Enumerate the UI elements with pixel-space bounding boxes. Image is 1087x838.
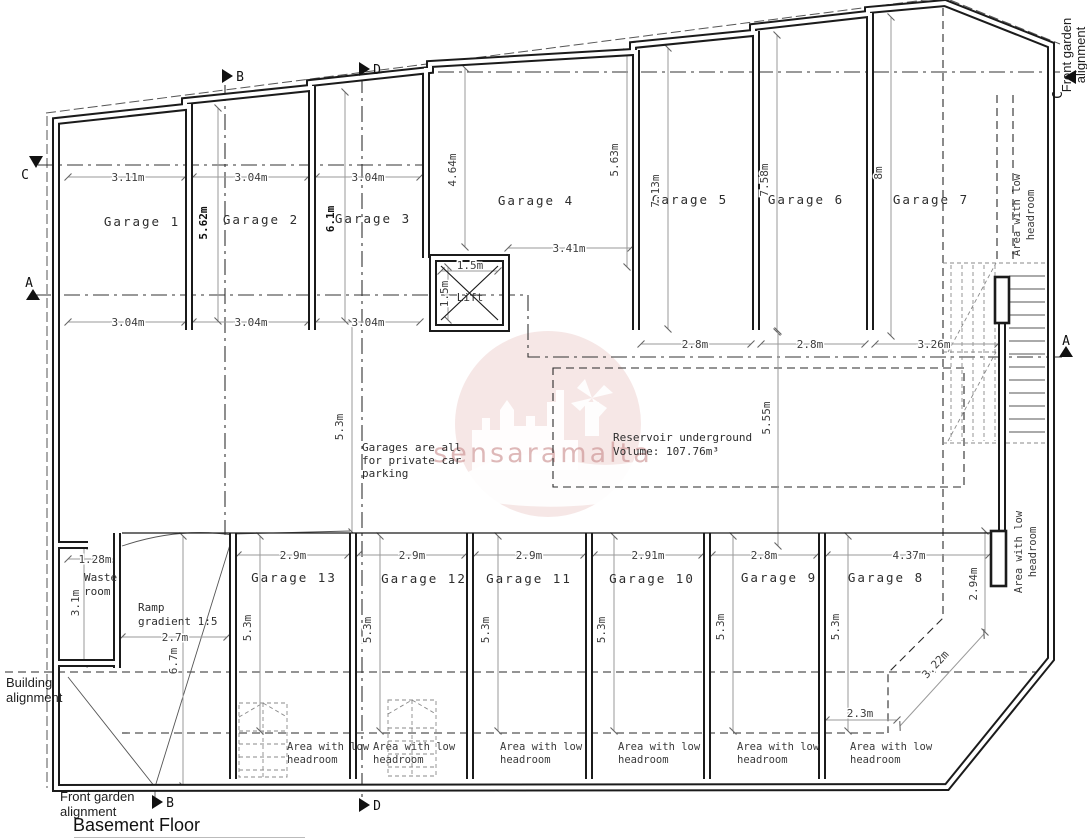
garage-12-label: Garage 12 xyxy=(381,571,467,586)
basement-floor-plan: sensaramalta xyxy=(0,0,1087,838)
dim-depth-g6: 7.58m xyxy=(758,163,771,196)
dim-depth-g7: 8m xyxy=(872,166,885,180)
front-garden-bottom-line1: Front garden xyxy=(60,789,134,804)
dim-depth-g4b: 5.63m xyxy=(608,143,621,176)
section-b-bottom-letter: B xyxy=(166,796,174,811)
dim-depth-g4a: 4.64m xyxy=(446,153,459,186)
dim-corner-diag: 3.22m xyxy=(919,648,951,681)
watermark-logo: sensaramalta xyxy=(433,331,662,517)
section-d-bottom-letter: D xyxy=(373,799,381,814)
low-headroom-g11-1: Area with low xyxy=(500,741,583,753)
dim-waste-h: 3.1m xyxy=(69,589,82,616)
section-b-top-marker xyxy=(222,69,233,83)
low-headroom-g12-2: headroom xyxy=(373,754,424,766)
garage-5-label: Garage 5 xyxy=(652,192,728,207)
dim-depth-g2: 5.62m xyxy=(197,206,210,239)
dim-bottom-6: 4.37m xyxy=(892,549,925,562)
dim-reservoir-h: 5.55m xyxy=(760,401,773,434)
section-a-left-letter: A xyxy=(25,276,33,291)
garage-6-label: Garage 6 xyxy=(768,192,844,207)
low-headroom-g9-1: Area with low xyxy=(737,741,820,753)
dim-right-2: 2.8m xyxy=(797,338,824,351)
section-c-left-marker xyxy=(29,156,43,168)
dim-mid-3: 3.04m xyxy=(351,316,384,329)
low-headroom-g11-2: headroom xyxy=(500,754,551,766)
garage-4-label: Garage 4 xyxy=(498,193,574,208)
garage-3-label: Garage 3 xyxy=(335,211,411,226)
dim-corner-h: 2.3m xyxy=(847,707,874,720)
dim-aisle: 5.3m xyxy=(333,413,346,440)
dim-garage4-opening: 3.41m xyxy=(552,242,585,255)
low-headroom-g8-2: headroom xyxy=(850,754,901,766)
dim-depth-g13: 5.3m xyxy=(241,614,254,641)
dim-mid-1: 3.04m xyxy=(111,316,144,329)
dim-depth-g12: 5.3m xyxy=(361,616,374,643)
dim-ramp-w: 2.7m xyxy=(162,631,189,644)
dim-bottom-1: 2.9m xyxy=(280,549,307,562)
dim-depth-g11: 5.3m xyxy=(479,616,492,643)
low-headroom-g10-1: Area with low xyxy=(618,741,701,753)
section-c-left-letter: C xyxy=(21,168,29,183)
low-headroom-g13-1: Area with low xyxy=(287,741,370,753)
section-b-top-letter: B xyxy=(236,70,244,85)
dim-lift-w: 1.5m xyxy=(457,259,484,272)
dim-lift-h: 1.5m xyxy=(438,280,451,307)
dim-depth-g5: 7.13m xyxy=(649,174,662,207)
ramp-label-line2: gradient 1:5 xyxy=(138,615,217,628)
garage-9-label: Garage 9 xyxy=(741,570,817,585)
building-alignment-line2: alignment xyxy=(6,690,63,705)
garage-8-label: Garage 8 xyxy=(848,570,924,585)
garage-10-label: Garage 10 xyxy=(609,571,695,586)
garage-7-label: Garage 7 xyxy=(893,192,969,207)
dim-top-2: 3.04m xyxy=(234,171,267,184)
low-headroom-g8-1: Area with low xyxy=(850,741,933,753)
low-headroom-topright-2: headroom xyxy=(1025,190,1037,241)
dim-corner-v: 2.94m xyxy=(967,567,980,600)
building-alignment-line1: Building xyxy=(6,675,52,690)
dim-waste-w: 1.28m xyxy=(78,553,111,566)
dim-bottom-4: 2.91m xyxy=(631,549,664,562)
dim-right-3: 3.26m xyxy=(917,338,950,351)
drawing-title-block: Basement Floor xyxy=(73,815,305,838)
dim-mid-2: 3.04m xyxy=(234,316,267,329)
section-d-top-letter: D xyxy=(373,63,381,78)
waste-room-line1: Waste xyxy=(84,571,117,584)
low-headroom-g12-1: Area with low xyxy=(373,741,456,753)
page-title: Basement Floor xyxy=(73,815,200,835)
dim-depth-g10: 5.3m xyxy=(595,616,608,643)
dim-depth-g3: 6.1m xyxy=(324,205,337,232)
dim-ramp-l: 6.7m xyxy=(167,647,180,674)
wall-pillar xyxy=(991,531,1006,586)
low-headroom-topright-1: Area with low xyxy=(1011,173,1023,256)
dim-bottom-5: 2.8m xyxy=(751,549,778,562)
dim-top-3: 3.04m xyxy=(351,171,384,184)
lift-label: Lift xyxy=(457,291,484,304)
dim-depth-g8: 5.3m xyxy=(829,613,842,640)
garage-11-label: Garage 11 xyxy=(486,571,572,586)
garage-13-label: Garage 13 xyxy=(251,570,337,585)
floor-plan-svg: sensaramalta xyxy=(0,0,1087,838)
dim-bottom-2: 2.9m xyxy=(399,549,426,562)
garage-2-label: Garage 2 xyxy=(223,212,299,227)
stair-newel-wall xyxy=(995,277,1009,323)
dim-top-1: 3.11m xyxy=(111,171,144,184)
dim-right-1: 2.8m xyxy=(682,338,709,351)
dim-bottom-3: 2.9m xyxy=(516,549,543,562)
low-headroom-g9-2: headroom xyxy=(737,754,788,766)
section-d-bottom-marker xyxy=(359,798,370,812)
reservoir-note-line2: Volume: 107.76m³ xyxy=(613,445,719,458)
garages-note-line2: for private car xyxy=(362,454,462,467)
dim-depth-g9: 5.3m xyxy=(714,613,727,640)
waste-room-line2: room xyxy=(84,585,111,598)
garages-note-line1: Garages are all xyxy=(362,441,461,454)
low-headroom-g13-2: headroom xyxy=(287,754,338,766)
low-headroom-right-1: Area with low xyxy=(1013,510,1025,593)
low-headroom-g10-2: headroom xyxy=(618,754,669,766)
garages-note-line3: parking xyxy=(362,467,408,480)
low-headroom-right-2: headroom xyxy=(1027,527,1039,578)
ramp-label-line1: Ramp xyxy=(138,601,165,614)
section-c-right-letter: C xyxy=(1051,91,1066,99)
garage-1-label: Garage 1 xyxy=(104,214,180,229)
reservoir-note-line1: Reservoir underground xyxy=(613,431,752,444)
section-b-bottom-marker xyxy=(152,795,163,809)
